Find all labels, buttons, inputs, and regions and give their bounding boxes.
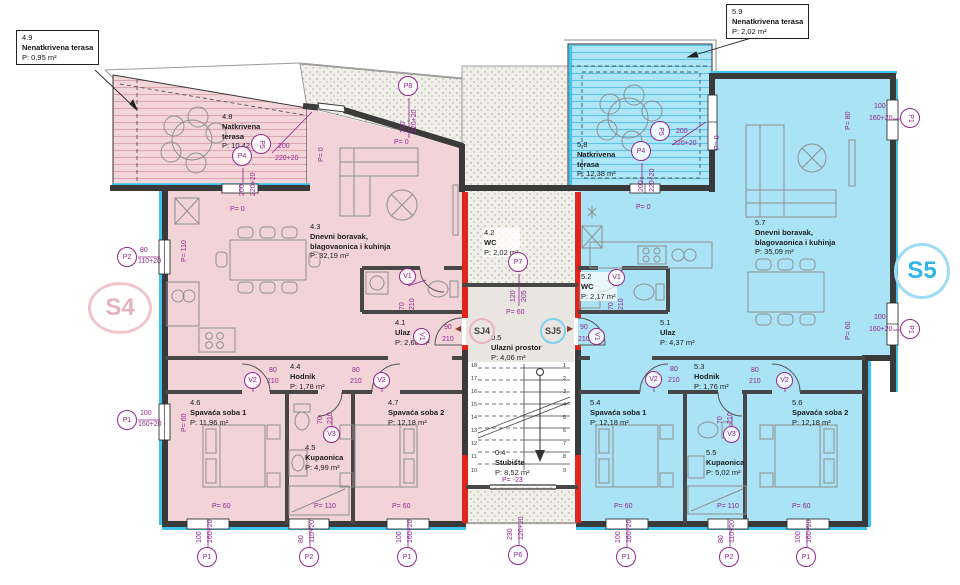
dim-width: 100	[140, 410, 152, 418]
dim-width: 200	[638, 180, 646, 192]
entry-arrow-right-icon: ▶	[567, 325, 573, 333]
callout-area: P: 0,95 m²	[22, 53, 93, 63]
level-label: P= 110	[181, 240, 189, 262]
level-label: P= 110	[314, 503, 336, 511]
level-label: P= -23	[502, 477, 523, 485]
room-label-4-5: 4.5Kupaonica P: 4,99 m²	[305, 443, 343, 472]
window-marker-p1: P1	[616, 547, 636, 567]
callout-area: P: 2,02 m²	[732, 27, 803, 37]
dim-height: 210	[442, 336, 454, 344]
room-label-5-5: 5.5Kupaonica P: 5,02 m²	[706, 448, 744, 477]
level-label: P= 60	[845, 322, 853, 341]
door-marker-p6: P6	[508, 545, 528, 565]
floor-plan: 4.9 Nenatkrivena terasa P: 0,95 m² 5.9 N…	[0, 0, 960, 585]
junction-sj5: SJ5	[540, 318, 566, 344]
junction-sj4: SJ4	[469, 318, 495, 344]
dim-height: 110+20	[729, 520, 737, 543]
door-marker-p5: P5	[650, 121, 670, 141]
dim-height: 220+20	[250, 172, 258, 196]
door-marker-v2: V2	[645, 371, 662, 388]
window-marker-p2: P2	[117, 247, 137, 267]
dim-height: 205	[521, 290, 529, 302]
window-marker-p1: P1	[117, 410, 137, 430]
dim-width: 80	[140, 247, 148, 255]
dim-height: 160+20	[869, 326, 893, 334]
dim-width: 80	[269, 367, 277, 375]
level-label: P= 0	[230, 206, 245, 214]
dim-height: 210	[267, 378, 279, 386]
dim-width: 80	[670, 366, 678, 374]
room-label-4-6: 4.6Spavaća soba 1 P: 11,96 m²	[190, 398, 246, 427]
level-label: P= 60	[792, 503, 811, 511]
dim-width: 90	[444, 324, 452, 332]
dim-width: 100	[400, 121, 408, 133]
window-marker-p2: P2	[299, 547, 319, 567]
room-label-5-8: 5.8Natkrivena terasaP: 12,38 m²	[577, 140, 616, 179]
window-marker-p1: P1	[197, 547, 217, 567]
dim-width: 100	[396, 531, 404, 543]
level-label: P= 60	[392, 503, 411, 511]
door-marker-v1: V1	[413, 328, 430, 345]
dim-height: 210	[327, 412, 335, 424]
dim-width: 90	[580, 324, 588, 332]
room-label-4-3: 4.3Dnevni boravak, blagovaonica i kuhinj…	[310, 222, 390, 261]
room-label-5-1: 5.1Ulaz P: 4,37 m²	[660, 318, 695, 347]
dim-height: 160+20	[626, 519, 634, 543]
dim-width: 100	[196, 531, 204, 543]
level-label: P= 80	[845, 112, 853, 131]
dim-height: 160+20	[869, 115, 893, 123]
level-label: P= 0	[636, 204, 651, 212]
dim-width: 70	[717, 416, 725, 424]
level-label: P= 60	[506, 309, 525, 317]
dim-width: 200	[676, 128, 688, 136]
unit-badge-s5: S5	[894, 243, 950, 299]
level-label: P= 60	[614, 503, 633, 511]
window-marker-p1: P1	[900, 108, 920, 128]
window-marker-p1: P1	[796, 547, 816, 567]
door-marker-v2: V2	[776, 372, 793, 389]
window-marker-p7: P7	[508, 252, 528, 272]
dim-width: 80	[751, 367, 759, 375]
dim-height: 210	[727, 412, 735, 424]
dim-width: 120	[510, 290, 518, 302]
dim-width: 70	[317, 416, 325, 424]
level-label: P= 110	[717, 503, 739, 511]
callout-5-9: 5.9 Nenatkrivena terasa P: 2,02 m²	[726, 4, 809, 39]
dim-height: 210	[409, 298, 417, 310]
door-marker-v3: V3	[323, 426, 340, 443]
window-marker-p8: P8	[398, 76, 418, 96]
callout-4-9: 4.9 Nenatkrivena terasa P: 0,95 m²	[16, 30, 99, 65]
window-marker-p2: P2	[719, 547, 739, 567]
room-label-0-5: 0.5Ulazni prostor P: 4,06 m²	[491, 333, 541, 362]
dim-width: 80	[298, 535, 306, 543]
level-label: P= 60	[181, 414, 189, 433]
door-marker-v2: V2	[244, 372, 261, 389]
dim-height: 220+20	[411, 109, 419, 133]
dim-height: 160+20	[207, 519, 215, 543]
dim-width: 200	[239, 184, 247, 196]
callout-name: Nenatkrivena terasa	[732, 17, 803, 27]
door-marker-v1: V1	[399, 268, 416, 285]
room-label-0-4: 0.4Stubište P: 8,52 m²	[495, 448, 530, 477]
dim-height: 220+20	[649, 168, 657, 192]
callout-number: 5.9	[732, 7, 803, 17]
door-marker-v3: V3	[723, 426, 740, 443]
dim-height: 210	[618, 298, 626, 310]
room-label-4-7: 4.7Spavaća soba 2 P: 12,18 m²	[388, 398, 444, 427]
dim-width: 100	[874, 314, 886, 322]
dim-height: 120+20	[518, 516, 526, 540]
room-label-5-3: 5.3Hodnik P: 1,76 m²	[694, 362, 729, 391]
dim-width: 80	[352, 367, 360, 375]
dim-height: 210	[578, 336, 590, 344]
dim-height: 110+20	[309, 520, 317, 543]
dim-width: 70	[399, 302, 407, 310]
door-marker-p4: P4	[631, 141, 651, 161]
entry-arrow-left-icon: ◀	[455, 325, 461, 333]
room-label-5-7: 5.7Dnevni boravak, blagovaonica i kuhinj…	[755, 218, 835, 257]
door-marker-p4: P4	[232, 146, 252, 166]
window-marker-p1: P1	[397, 547, 417, 567]
dim-width: 230	[507, 528, 515, 540]
stair-numbers-lower-flight: 12 34 56 78 9	[563, 364, 566, 474]
dim-height: 210	[749, 378, 761, 386]
callout-name: Nenatkrivena terasa	[22, 43, 93, 53]
dim-height: 220+20	[275, 155, 299, 163]
unit-badge-s4: S4	[88, 282, 152, 334]
dim-height: 210	[668, 377, 680, 385]
dim-height: 160+20	[138, 421, 162, 429]
dim-width: 100	[874, 103, 886, 111]
stair-numbers-upper-flight: 1817 1615 1413 1211 10	[471, 364, 477, 474]
dim-width: 100	[795, 531, 803, 543]
dim-width: 80	[718, 535, 726, 543]
dim-width: 100	[615, 531, 623, 543]
level-label: P= 60	[212, 503, 231, 511]
dim-height: 210	[350, 378, 362, 386]
room-label-5-6: 5.6Spavaća soba 2 P: 12,18 m²	[792, 398, 848, 427]
door-marker-v2: V2	[373, 372, 390, 389]
dim-height: 110+20	[138, 258, 161, 266]
dim-height: 160+20	[407, 519, 415, 543]
dim-height: 160+20	[806, 519, 814, 543]
dim-width: 70	[608, 302, 616, 310]
callout-number: 4.9	[22, 33, 93, 43]
level-label: P= 0	[318, 147, 326, 162]
door-marker-v1: V1	[588, 328, 605, 345]
dim-height: 220+20	[673, 140, 697, 148]
level-label: P= 0	[714, 135, 722, 150]
door-marker-v1: V1	[608, 269, 625, 286]
door-marker-p5: P5	[251, 134, 271, 154]
window-marker-p1: P1	[900, 319, 920, 339]
room-label-4-4: 4.4Hodnik P: 1,78 m²	[290, 362, 325, 391]
room-label-5-4: 5.4Spavaća soba 1 P: 12,18 m²	[590, 398, 646, 427]
level-label: P= 0	[394, 139, 409, 147]
dim-width: 200	[278, 143, 290, 151]
